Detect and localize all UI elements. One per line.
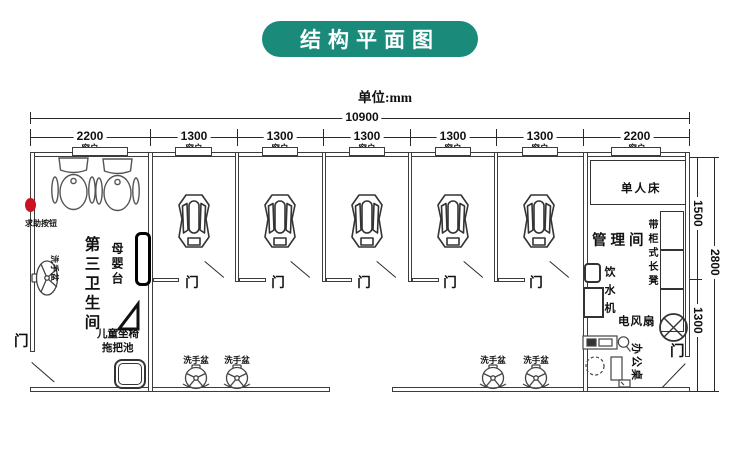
cabinet-divider <box>661 288 683 290</box>
title-badge: 结构平面图 <box>262 21 478 57</box>
office-desk-label: 办公桌 <box>630 343 641 382</box>
accessible-toilet-icon <box>51 156 96 216</box>
dim-tick <box>410 129 411 146</box>
wash-basin-label: 洗手盆 <box>480 356 506 365</box>
floor-plan-canvas: 结构平面图 单位:mm 10900 2200 1300 1300 1300 13… <box>0 0 742 456</box>
stall-front-wall <box>412 278 439 282</box>
stall-door-swing <box>549 261 569 278</box>
stall-front-wall <box>153 278 179 282</box>
dim-tick <box>690 279 702 280</box>
mop-pool-label: 拖把池 <box>102 344 134 355</box>
dim-tick <box>323 129 324 146</box>
child-seat-label: 儿童坐椅 <box>97 330 139 341</box>
stall-partition <box>235 152 239 282</box>
dim-tick <box>30 112 31 124</box>
dim-tick <box>237 129 238 146</box>
mop-pool <box>114 359 146 389</box>
squat-toilet-icon <box>520 192 558 252</box>
stall-partition <box>494 152 498 282</box>
window-symbol <box>435 147 471 156</box>
dim-segment-value: 2200 <box>621 130 654 143</box>
help-button-label: 求助按钮 <box>25 220 57 228</box>
water-dispenser-unit <box>583 287 604 318</box>
page-title: 结构平面图 <box>300 24 440 54</box>
dim-right-total: 2800 <box>708 246 722 279</box>
dim-segment-value: 1300 <box>437 130 470 143</box>
wash-basin-icon <box>476 365 510 389</box>
electric-fan-icon <box>658 312 689 343</box>
room-name-third-restroom: 第三卫生间 <box>83 236 99 334</box>
water-dispenser-label: 饮水机 <box>603 266 614 320</box>
wall-left <box>30 152 35 352</box>
stall-front-wall <box>326 278 352 282</box>
dim-total-width: 10900 <box>342 111 381 124</box>
wash-basin-label: 洗手盆 <box>50 255 58 282</box>
wash-basin-icon <box>220 365 254 389</box>
dim-segment-value: 2200 <box>74 130 107 143</box>
cabinet-bench-label: 带柜式长凳 <box>646 219 656 289</box>
electric-fan-label: 电风扇 <box>618 317 656 329</box>
dim-tick <box>496 129 497 146</box>
dim-segment-value: 1300 <box>351 130 384 143</box>
single-bed-label: 单人床 <box>621 184 662 196</box>
wash-basin-label: 洗手盆 <box>224 356 250 365</box>
office-desk-icon <box>582 334 634 388</box>
stall-door-label: 门 <box>527 276 545 290</box>
mop-pool-inner <box>118 363 142 385</box>
water-dispenser-unit <box>584 263 601 283</box>
stall-door-label: 门 <box>355 276 373 290</box>
child-seat-icon <box>115 300 141 332</box>
squat-toilet-icon <box>175 192 213 252</box>
stall-front-wall <box>239 278 266 282</box>
door-swing-left <box>31 362 54 383</box>
cabinet-divider <box>661 249 683 251</box>
unit-label: 单位:mm <box>358 91 412 105</box>
dim-tick <box>690 157 719 158</box>
squat-toilet-icon <box>434 192 472 252</box>
window-symbol <box>262 147 298 156</box>
dim-tick <box>150 129 151 146</box>
stall-door-swing <box>290 261 310 278</box>
door-swing-right <box>662 363 686 388</box>
window-symbol <box>522 147 558 156</box>
squat-toilet-icon <box>261 192 299 252</box>
stall-door-swing <box>204 261 224 278</box>
wash-basin-icon <box>179 365 213 389</box>
dim-tick <box>689 129 690 146</box>
stall-partition <box>408 152 412 282</box>
stall-front-wall <box>498 278 525 282</box>
dim-tick <box>690 391 719 392</box>
baby-care-table-label: 母婴台 <box>111 242 123 287</box>
stall-door-swing <box>376 261 396 278</box>
window-symbol <box>349 147 385 156</box>
squat-toilet-icon <box>348 192 386 252</box>
window-symbol <box>611 147 661 156</box>
door-label-left: 门 <box>14 335 29 350</box>
dim-segment-value: 1300 <box>178 130 211 143</box>
accessible-toilet-icon <box>95 157 140 217</box>
dim-tick <box>583 129 584 146</box>
stall-door-label: 门 <box>269 276 287 290</box>
door-label-right: 门 <box>670 345 685 360</box>
wash-basin-label: 洗手盆 <box>183 356 209 365</box>
stall-partition <box>322 152 326 282</box>
dim-tick <box>30 129 31 146</box>
room-name-management: 管理间 <box>592 234 648 249</box>
dim-line-right-inner <box>697 158 698 392</box>
dim-segment-value: 1300 <box>524 130 557 143</box>
dim-right-top: 1500 <box>691 197 705 230</box>
stall-door-label: 门 <box>183 276 201 290</box>
wash-basin-icon <box>519 365 553 389</box>
dim-segment-value: 1300 <box>264 130 297 143</box>
window-symbol <box>175 147 212 156</box>
stall-door-swing <box>463 261 483 278</box>
dim-tick <box>689 112 690 124</box>
dim-right-bottom: 1300 <box>691 304 705 337</box>
stall-door-label: 门 <box>441 276 459 290</box>
baby-care-table <box>135 232 151 286</box>
window-symbol <box>72 147 128 156</box>
wash-basin-label: 洗手盆 <box>523 356 549 365</box>
help-button-dot <box>25 198 36 212</box>
